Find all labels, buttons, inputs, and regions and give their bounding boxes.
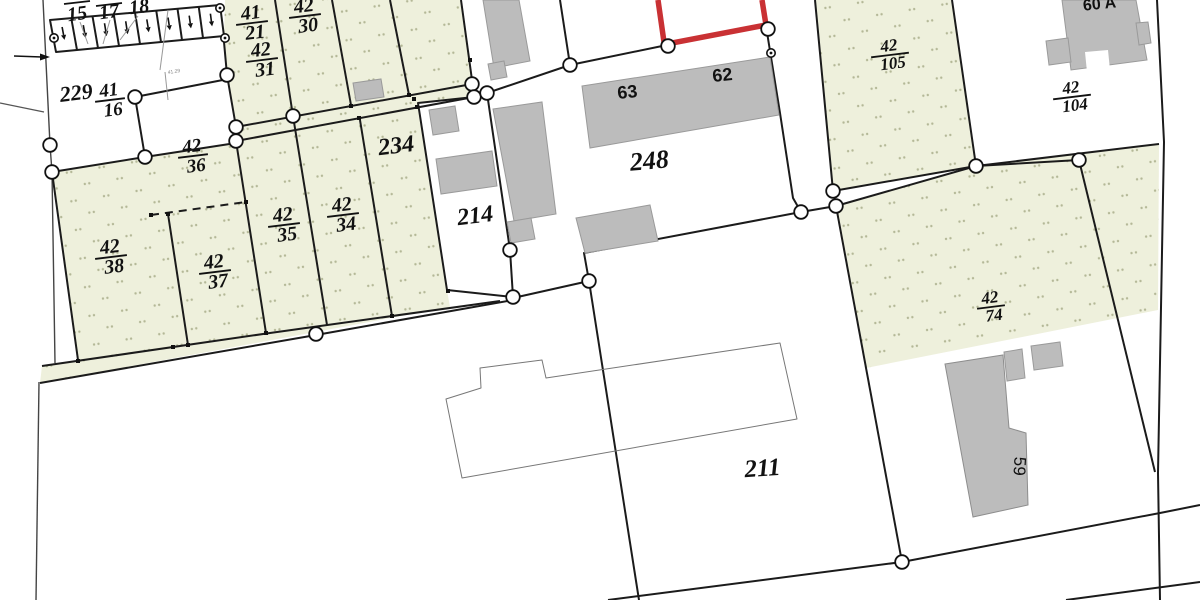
svg-text:15: 15 bbox=[66, 2, 89, 27]
svg-text:234: 234 bbox=[376, 131, 416, 161]
svg-text:36: 36 bbox=[185, 155, 208, 178]
svg-text:74: 74 bbox=[984, 305, 1003, 326]
svg-text:34: 34 bbox=[334, 213, 358, 237]
svg-text:38: 38 bbox=[102, 255, 126, 279]
svg-text:214: 214 bbox=[455, 201, 495, 231]
svg-text:105: 105 bbox=[879, 52, 907, 74]
svg-text:59: 59 bbox=[1010, 456, 1030, 476]
svg-text:31: 31 bbox=[253, 58, 277, 82]
svg-text:229: 229 bbox=[57, 78, 94, 107]
svg-text:211: 211 bbox=[743, 454, 782, 484]
svg-text:16: 16 bbox=[103, 99, 125, 122]
svg-text:35: 35 bbox=[275, 223, 299, 247]
svg-text:62: 62 bbox=[711, 64, 733, 86]
svg-text:37: 37 bbox=[206, 269, 231, 294]
svg-text:104: 104 bbox=[1061, 94, 1089, 116]
svg-text:30: 30 bbox=[296, 14, 320, 38]
svg-text:248: 248 bbox=[628, 144, 670, 176]
svg-text:63: 63 bbox=[616, 81, 638, 103]
svg-text:18: 18 bbox=[128, 0, 151, 19]
